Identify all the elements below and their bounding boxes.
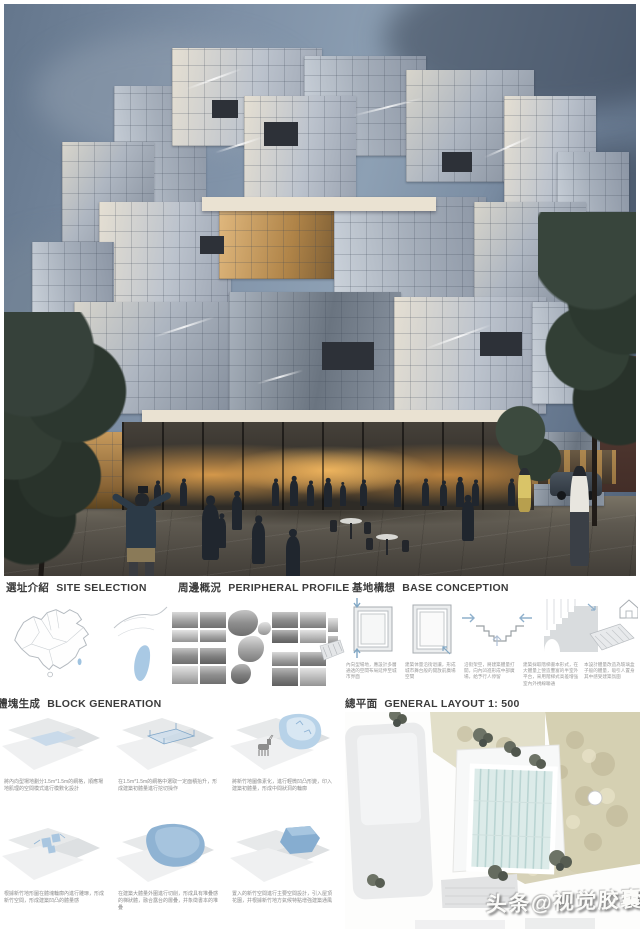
base-diagram-frame-setback: [348, 598, 400, 658]
block-caption: 在1.5m*1.5m的網格中選取一定面積抬升，形成建築初體量進行挖切操作: [118, 779, 218, 793]
taiwan-inset-map: [110, 600, 168, 698]
block-step-6-ventilate: [228, 818, 335, 888]
pedestrian-silhouette: [462, 501, 474, 541]
context-photo: [200, 666, 226, 684]
context-photo: [238, 636, 264, 662]
context-photo: [300, 668, 326, 686]
tree: [538, 212, 636, 496]
block-step-3-pixelate: [228, 706, 335, 776]
base-diagram-stepped-plaza: [460, 604, 534, 656]
base-caption: 建築採取階梯書本形式，在大體量上營造豐富的半室外平台，采用階梯式高差增強室內外視…: [523, 662, 579, 687]
heading-zh: 體塊生成: [0, 698, 40, 710]
heading-general-layout: 總平面GENERAL LAYOUT 1: 500: [345, 699, 520, 710]
base-diagram-roof-house: [586, 596, 638, 658]
block-caption: 將新竹地圖像素化，進行輕微凹凸形變，印入建築初體量，形成中間狀洞的輪廓: [232, 779, 334, 793]
window-opening: [212, 100, 238, 118]
pedestrian-silhouette: [217, 518, 226, 548]
cantilever-soffit: [142, 410, 526, 422]
context-photo: [172, 630, 198, 642]
base-diagram-hatch-fragment: [318, 638, 346, 664]
mirror-cube: [219, 207, 337, 279]
heading-block-generation: 體塊生成BLOCK GENERATION: [0, 699, 161, 710]
block-caption: 根據新竹地形圖在體塊輪廓內進行雕琢，形成新竹空間，形成建築凹凸的體量感: [4, 891, 104, 905]
pedestrian-silhouette: [440, 484, 447, 506]
pedestrian-silhouette: [360, 483, 367, 506]
heading-zh: 總平面: [345, 698, 377, 710]
mirror-cube: [334, 197, 486, 303]
block-step-1-grid: [0, 712, 105, 776]
cafe-chair: [366, 538, 373, 550]
cantilever-soffit: [202, 197, 436, 211]
cafe-table: [376, 534, 398, 540]
context-photo: [272, 668, 298, 686]
pedestrian-silhouette: [252, 522, 265, 564]
block-caption: 置入的新竹空間進行主要空間設計，引入屋頂花園，并根據新竹地方氣候特點增強建築通風: [232, 891, 334, 905]
heading-en: GENERAL LAYOUT 1: 500: [384, 698, 519, 710]
context-photo: [258, 622, 271, 635]
heading-peripheral-profile: 周邊概況PERIPHERAL PROFILE: [178, 583, 350, 594]
block-caption: 在建築大體量外圍進行切削，形成具有堆疊感的梯狀體，融合露台的層疊，并象徵書本的堆…: [118, 891, 220, 912]
heading-base-conception: 基地構想BASE CONCEPTION: [352, 583, 509, 594]
pedestrian-silhouette: [290, 480, 298, 506]
context-photo: [272, 652, 298, 666]
window-opening: [200, 236, 224, 254]
heading-en: BASE CONCEPTION: [402, 582, 509, 594]
window-opening: [264, 122, 298, 146]
heading-site-selection: 選址介紹SITE SELECTION: [6, 583, 147, 594]
context-photo: [228, 610, 258, 636]
context-photo: [200, 612, 226, 628]
base-caption: 沿街架空，將建築體量打開，向內凹進形成中部廣場，給予行人停留: [464, 662, 518, 681]
context-photo: [172, 666, 198, 684]
pedestrian-silhouette: [180, 482, 187, 506]
pedestrian-silhouette: [286, 536, 300, 576]
pedestrian-silhouette: [232, 496, 242, 530]
competition-board: 選址介紹SITE SELECTION 周邊概況PERIPHERAL PROFIL…: [0, 0, 640, 929]
context-photo: [328, 618, 338, 632]
block-step-5-terrace: [114, 816, 219, 888]
pedestrian-silhouette: [422, 482, 429, 506]
pedestrian-silhouette: [307, 484, 314, 506]
cafe-chair: [364, 522, 371, 534]
pedestrian-silhouette: [394, 483, 401, 507]
pedestrian-silhouette: [508, 482, 515, 506]
mirror-cube: [244, 96, 356, 198]
heading-zh: 基地構想: [352, 582, 395, 594]
context-photo: [200, 648, 226, 664]
window-opening: [442, 152, 472, 172]
block-step-2-extrude: [114, 712, 219, 776]
window-opening: [480, 332, 522, 356]
base-caption: 建築体量沿街退讓，形成城市舞台般的開放前廣場空間: [405, 662, 459, 681]
pedestrian-silhouette: [472, 483, 479, 506]
mirror-cube: [394, 297, 546, 414]
block-step-4-carve: [0, 820, 105, 888]
pedestrian-silhouette: [324, 482, 332, 507]
heading-en: SITE SELECTION: [56, 582, 147, 594]
block-caption: 將內向型場地劃分1.5m*1.5m的網格，順應場地肌理的空間模式進行模數化設計: [4, 779, 104, 793]
base-diagram-courtyard-frame: [406, 598, 458, 658]
cafe-chair: [330, 520, 337, 532]
mirror-cube: [229, 292, 401, 414]
china-map: [2, 600, 110, 694]
context-photo: [200, 630, 226, 642]
cafe-table: [340, 518, 362, 524]
heading-zh: 選址介紹: [6, 582, 49, 594]
watermark: 头条@视觉胶囊: [486, 883, 640, 919]
pedestrian-silhouette: [272, 482, 279, 506]
context-photo: [272, 630, 298, 643]
base-caption: 內向型場地，應設計多層通透的空間布局延伸至城市界面: [346, 662, 400, 681]
heading-en: PERIPHERAL PROFILE: [228, 582, 349, 594]
mirror-cube: [99, 202, 231, 312]
context-photo: [231, 664, 251, 684]
context-photo: [272, 612, 298, 628]
pedestrian-white-shirt: [570, 466, 589, 566]
heading-zh: 周邊概況: [178, 582, 221, 594]
heading-en: BLOCK GENERATION: [47, 698, 161, 710]
photographer-figure: [108, 486, 174, 576]
window-opening: [322, 342, 374, 370]
cafe-chair: [402, 540, 409, 552]
context-photo: [300, 612, 326, 628]
context-photo: [172, 648, 198, 664]
pedestrian-silhouette: [340, 485, 346, 506]
hero-render: [4, 4, 636, 576]
pedestrian-yellow-dress: [518, 468, 531, 512]
base-caption: 本設計體量改造為玻璃盒子般的體量，吸引人置身其中感受建築氛圍: [584, 662, 638, 681]
context-photo: [172, 612, 198, 628]
